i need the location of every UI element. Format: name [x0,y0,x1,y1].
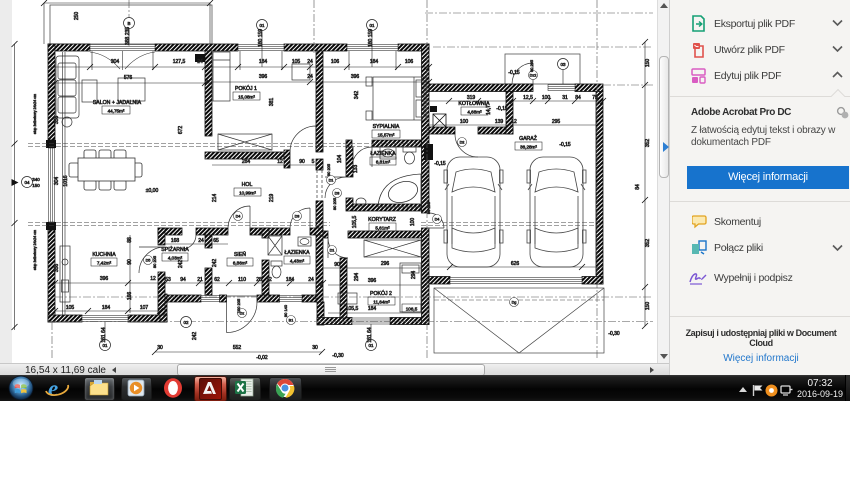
svg-text:352: 352 [645,139,651,148]
svg-text:D3: D3 [335,192,340,196]
svg-text:4,43m²: 4,43m² [290,259,305,264]
svg-text:24: 24 [198,238,204,244]
svg-text:242: 242 [192,332,198,341]
svg-text:396: 396 [100,276,109,282]
svg-text:POKÓJ 1: POKÓJ 1 [235,85,257,92]
svg-text:B: B [127,21,130,26]
svg-text:SYPIALNIA: SYPIALNIA [373,124,400,130]
svg-text:01: 01 [259,23,265,28]
svg-text:219: 219 [269,194,275,203]
svg-text:104: 104 [337,155,343,164]
svg-text:242: 242 [178,260,184,269]
svg-text:150: 150 [32,183,40,188]
svg-text:KORYTARZ: KORYTARZ [368,217,396,223]
svg-text:90 205: 90 205 [529,59,534,72]
svg-text:396: 396 [368,278,377,284]
svg-text:304: 304 [54,177,60,186]
svg-text:100 205: 100 205 [236,298,241,313]
svg-text:84: 84 [575,95,581,101]
svg-text:80 205: 80 205 [326,163,331,176]
svg-text:Dg: Dg [512,301,517,305]
svg-text:ŁAZIENKA: ŁAZIENKA [284,250,310,256]
svg-text:342: 342 [354,91,360,100]
svg-text:±0,00: ±0,00 [146,188,159,194]
svg-text:24: 24 [197,59,203,65]
svg-text:150: 150 [645,302,651,311]
svg-text:31: 31 [562,95,568,101]
svg-text:90 205: 90 205 [426,201,431,214]
svg-text:12,5: 12,5 [523,95,533,101]
svg-text:28: 28 [256,277,262,283]
svg-text:D4: D4 [236,215,241,219]
svg-text:SPIŻARNIA: SPIŻARNIA [161,246,189,253]
svg-text:100: 100 [460,119,469,125]
svg-text:-0,15: -0,15 [496,106,508,112]
svg-text:15,08m²: 15,08m² [238,95,255,100]
svg-text:184: 184 [286,277,295,283]
svg-text:10,99m²: 10,99m² [239,191,256,196]
svg-text:672: 672 [178,126,184,135]
svg-text:24: 24 [307,74,313,80]
svg-text:D5: D5 [146,259,151,263]
svg-text:D3: D3 [295,215,300,219]
svg-text:100: 100 [410,218,416,227]
svg-text:90: 90 [127,259,133,265]
svg-text:214: 214 [212,194,218,203]
svg-text:184: 184 [370,59,379,65]
svg-text:106: 106 [331,59,340,65]
svg-text:36,28m²: 36,28m² [520,145,537,150]
svg-text:KUCHNIA: KUCHNIA [92,252,116,258]
svg-text:319: 319 [467,95,476,101]
svg-text:105: 105 [292,59,301,65]
svg-text:D1: D1 [330,249,335,253]
svg-text:100: 100 [542,95,551,101]
svg-text:184: 184 [368,306,377,312]
svg-text:90: 90 [299,159,305,165]
svg-text:słup żelbetowy 24x24 cm: słup żelbetowy 24x24 cm [33,230,37,270]
svg-text:90: 90 [334,262,340,268]
svg-text:105,5: 105,5 [346,306,359,312]
svg-text:01: 01 [369,23,375,28]
svg-text:12: 12 [266,277,272,283]
svg-text:4,03m²: 4,03m² [168,256,183,261]
svg-text:53: 53 [165,277,171,283]
svg-text:SIEŃ: SIEŃ [234,251,246,258]
svg-text:356: 356 [54,116,60,125]
svg-text:12: 12 [150,276,156,282]
svg-text:5,61m²: 5,61m² [375,226,390,231]
svg-text:-0,15: -0,15 [559,142,571,148]
svg-text:-0,02: -0,02 [256,355,268,361]
svg-text:88: 88 [127,237,133,243]
svg-text:02: 02 [183,320,189,325]
svg-text:107: 107 [140,305,149,311]
svg-text:296: 296 [381,261,390,267]
svg-text:-0,30: -0,30 [608,331,620,337]
svg-text:127,5: 127,5 [173,59,186,65]
svg-text:65: 65 [213,238,219,244]
svg-text:6,81m²: 6,81m² [376,160,391,165]
svg-text:284: 284 [242,159,251,165]
svg-text:11,64m²: 11,64m² [373,300,390,305]
svg-text:184: 184 [259,59,268,65]
svg-text:340: 340 [32,177,40,182]
svg-text:1016: 1016 [63,175,69,186]
svg-text:181 64: 181 64 [367,327,373,343]
svg-text:GARAŻ: GARAŻ [519,135,537,142]
svg-text:381: 381 [269,98,275,107]
svg-text:181 64: 181 64 [101,327,107,343]
svg-text:12: 12 [511,119,517,125]
svg-text:44,75m²: 44,75m² [108,109,125,114]
svg-text:4,68m²: 4,68m² [467,110,482,115]
svg-text:-0,30: -0,30 [332,353,344,359]
svg-text:150: 150 [645,59,651,68]
svg-text:356: 356 [54,264,60,273]
svg-text:21: 21 [197,277,203,283]
svg-text:552: 552 [233,345,242,351]
svg-text:-0,15: -0,15 [508,70,520,76]
svg-text:576: 576 [124,75,133,81]
svg-text:184: 184 [102,305,111,311]
svg-text:B1: B1 [289,319,294,323]
svg-text:15,57m²: 15,57m² [378,133,395,138]
svg-text:14,7: 14,7 [486,105,492,115]
svg-text:110: 110 [238,277,246,283]
svg-text:04: 04 [24,180,30,185]
svg-text:105: 105 [66,305,75,311]
svg-text:388 235: 388 235 [125,27,131,45]
svg-text:HOL: HOL [242,182,253,188]
svg-text:105,5: 105,5 [352,216,358,229]
svg-text:106: 106 [405,59,414,65]
svg-text:168: 168 [171,238,180,244]
svg-text:03: 03 [560,62,566,67]
svg-text:304: 304 [111,59,120,65]
svg-text:12: 12 [277,159,283,165]
svg-text:84: 84 [635,184,641,190]
svg-text:D2: D2 [460,141,465,145]
svg-text:180 159: 180 159 [258,29,264,47]
svg-text:D4: D4 [435,218,440,222]
svg-text:242: 242 [212,259,218,268]
svg-text:80 205: 80 205 [332,197,337,210]
svg-text:75: 75 [592,95,598,101]
svg-text:295: 295 [552,119,561,125]
svg-text:626: 626 [511,261,520,267]
svg-text:24: 24 [308,277,314,283]
svg-text:-0,15: -0,15 [434,161,446,167]
svg-text:24: 24 [307,59,313,65]
svg-text:294: 294 [411,271,417,280]
svg-text:30: 30 [157,345,163,351]
svg-text:396: 396 [259,74,268,80]
svg-text:6,86m²: 6,86m² [233,261,248,266]
svg-text:90 140: 90 140 [283,304,288,317]
svg-text:352: 352 [645,239,651,248]
svg-text:słup żelbetowy 24x24 cm: słup żelbetowy 24x24 cm [33,94,37,134]
svg-text:80 205: 80 205 [152,255,157,268]
svg-text:180 159: 180 159 [368,29,374,47]
svg-text:Dz2: Dz2 [530,74,537,78]
svg-text:139: 139 [495,119,504,125]
svg-text:294: 294 [354,273,360,282]
svg-text:D1: D1 [329,179,334,183]
svg-text:166: 166 [127,292,133,301]
svg-text:7,42m²: 7,42m² [97,261,112,266]
svg-text:5: 5 [312,159,315,165]
svg-text:SALON + JADALNIA: SALON + JADALNIA [93,100,142,106]
svg-text:94: 94 [180,277,186,283]
svg-text:133: 133 [353,165,359,174]
svg-text:250: 250 [74,12,80,21]
svg-text:POKÓJ 2: POKÓJ 2 [370,290,392,297]
svg-text:30: 30 [312,345,318,351]
svg-text:ŁAZIENKA: ŁAZIENKA [370,151,396,157]
svg-text:62: 62 [214,277,220,283]
svg-text:106,5: 106,5 [406,307,418,312]
svg-text:396: 396 [351,74,360,80]
